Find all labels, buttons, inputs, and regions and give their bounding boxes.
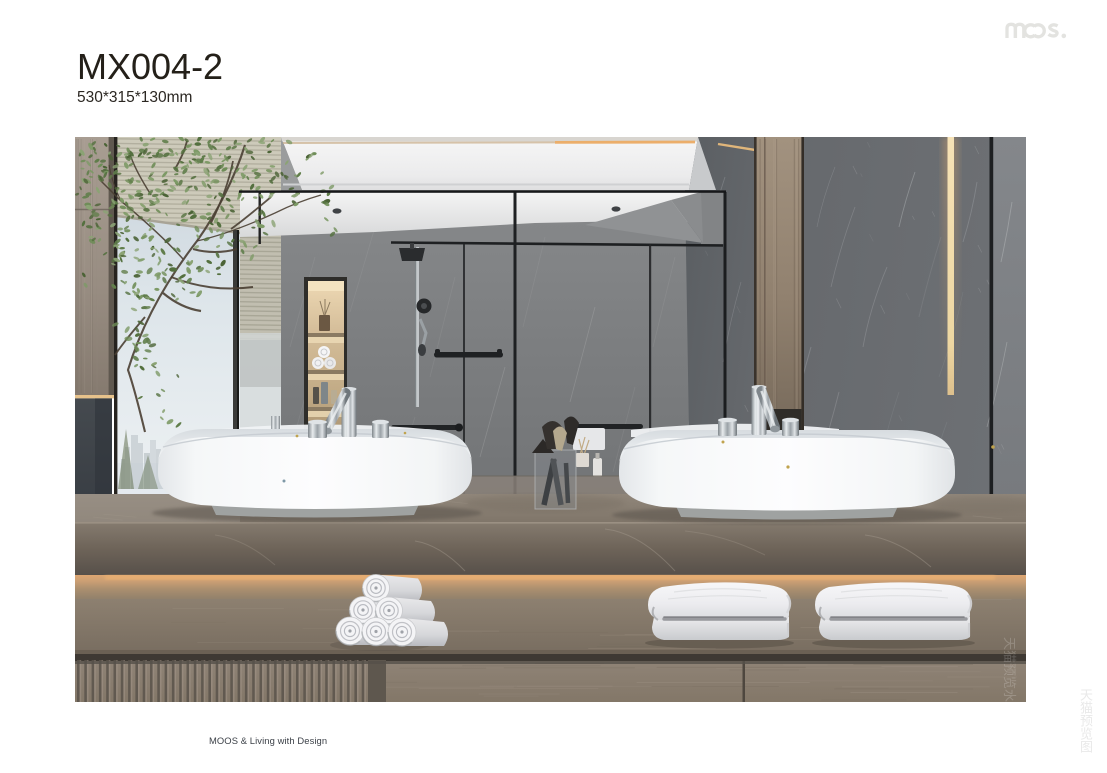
svg-text:天猫预览水印: 天猫预览水印 [1002, 637, 1017, 702]
